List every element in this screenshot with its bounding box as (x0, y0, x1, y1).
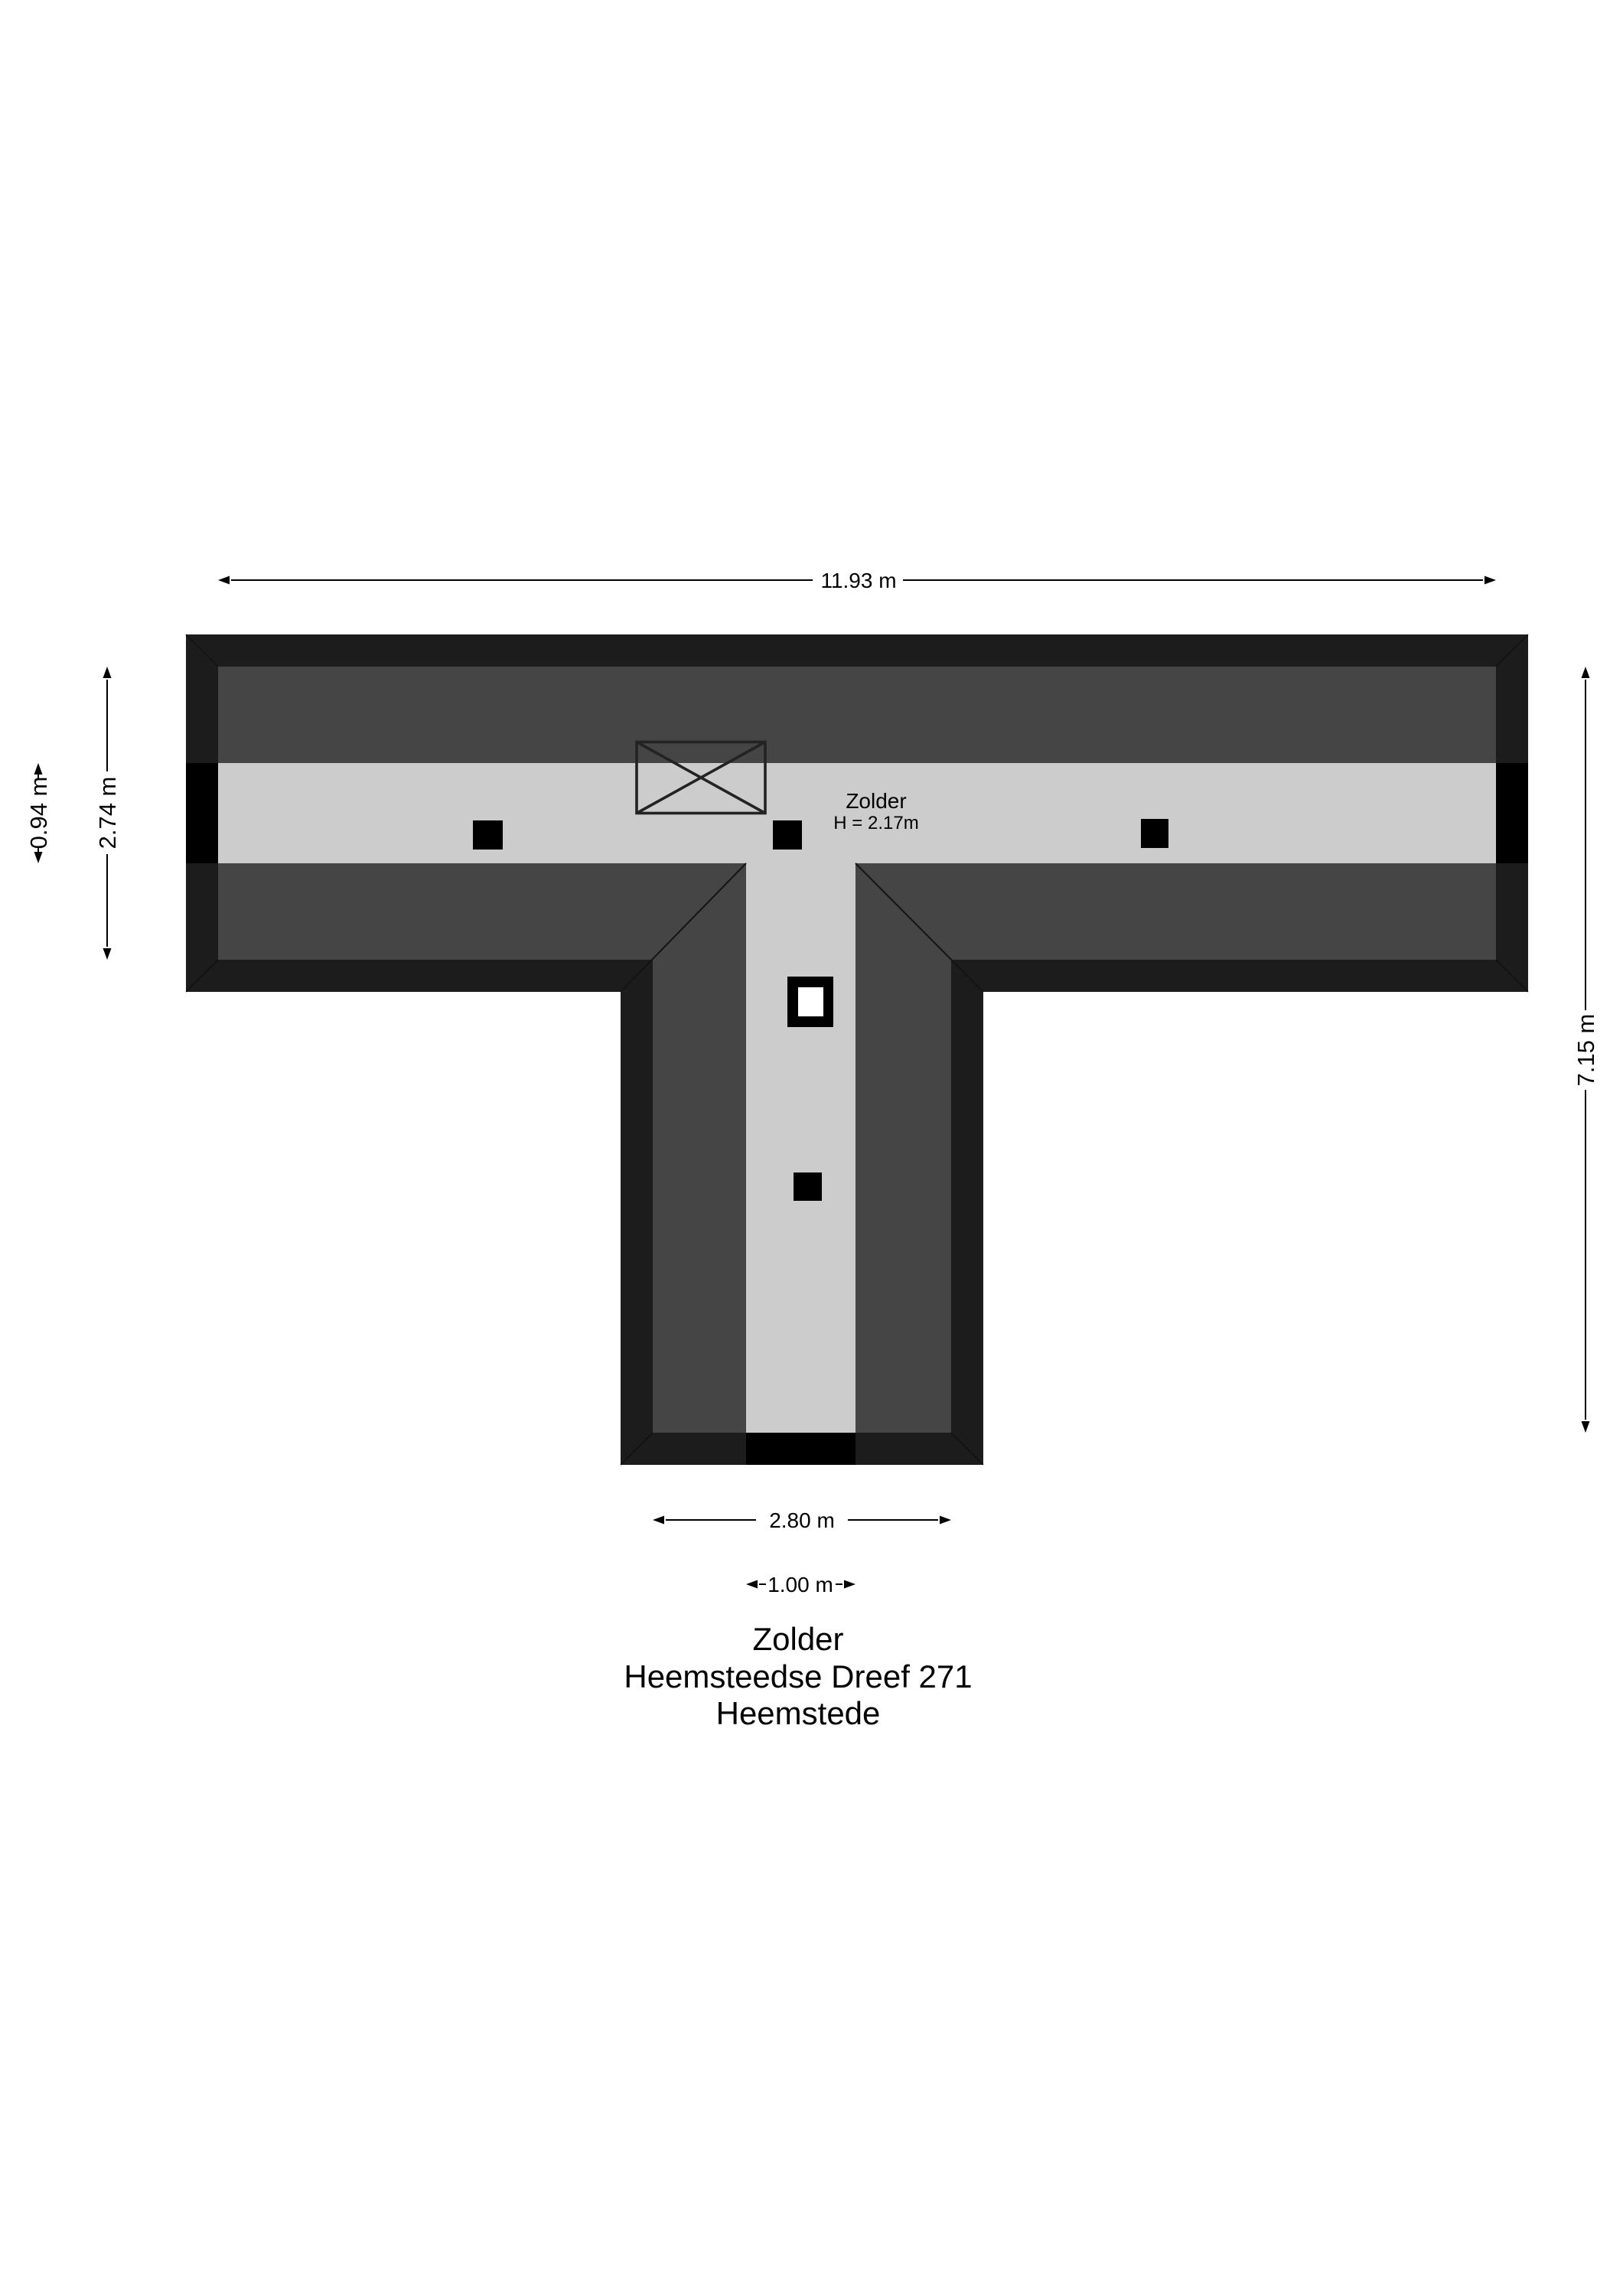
svg-text:H = 2.17m: H = 2.17m (833, 813, 918, 833)
svg-text:2.80 m: 2.80 m (769, 1508, 835, 1532)
svg-text:2.74 m: 2.74 m (94, 777, 121, 850)
svg-text:Heemsteedse Dreef 271: Heemsteedse Dreef 271 (624, 1658, 972, 1694)
svg-text:Heemstede: Heemstede (716, 1695, 881, 1731)
svg-text:7.15 m: 7.15 m (1572, 1014, 1599, 1087)
svg-text:11.93 m: 11.93 m (820, 569, 896, 592)
svg-text:0.94 m: 0.94 m (25, 777, 52, 850)
svg-text:Zolder: Zolder (752, 1621, 843, 1657)
svg-text:1.00 m: 1.00 m (768, 1573, 833, 1596)
svg-text:Zolder: Zolder (846, 789, 906, 813)
